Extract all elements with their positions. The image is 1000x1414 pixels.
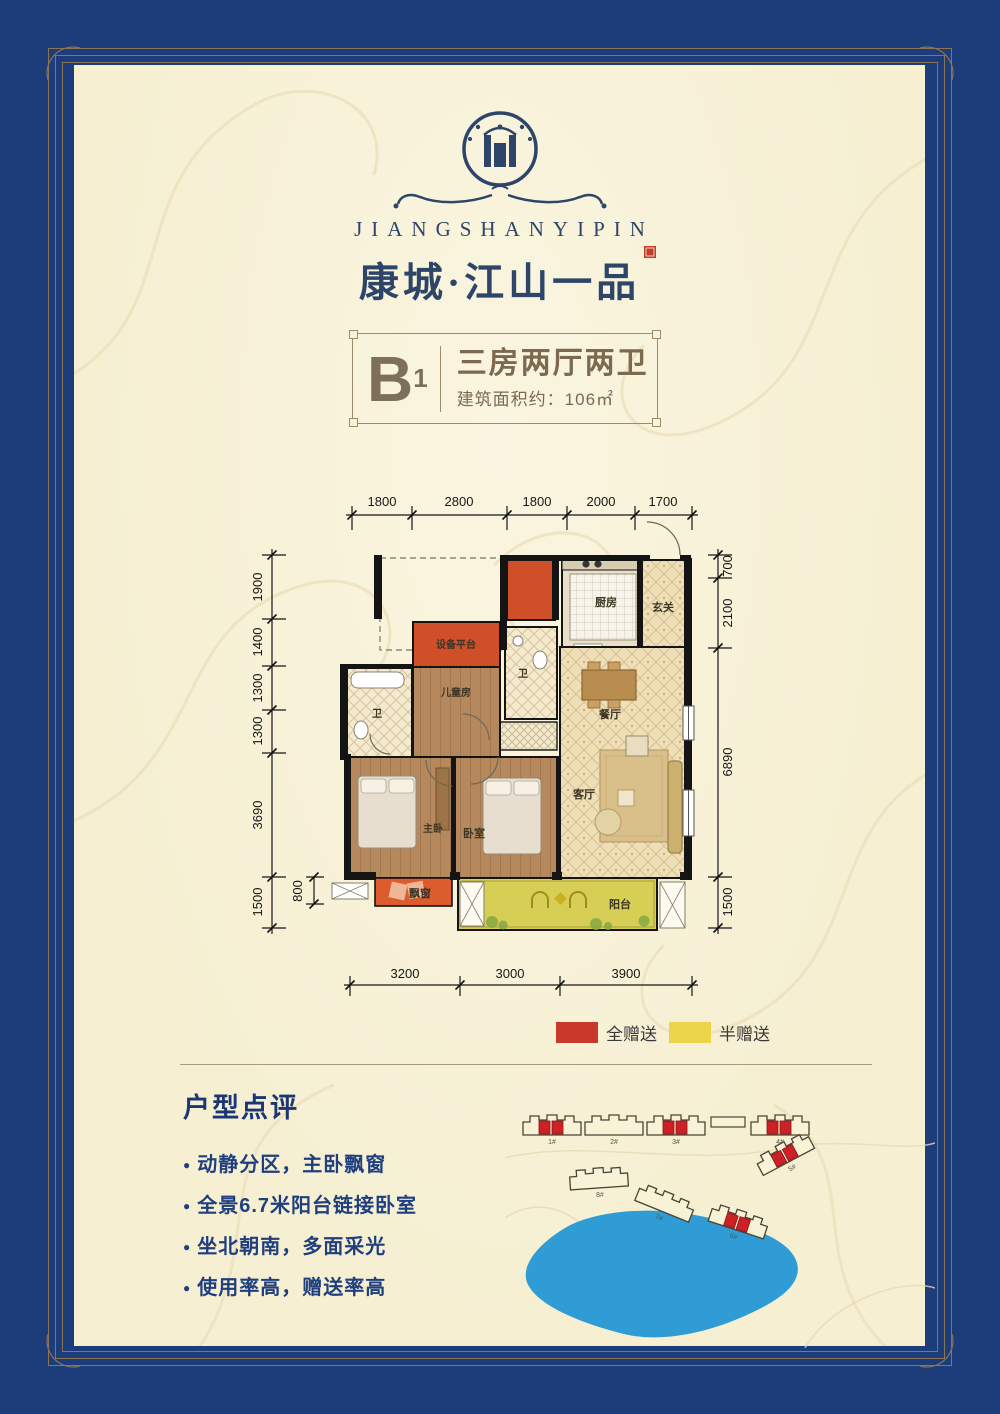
toilet-icon [533, 651, 547, 669]
building-1: 1# [523, 1115, 581, 1146]
legend-half-gift: 半赠送 [669, 1020, 770, 1045]
bathtub-icon [351, 672, 404, 688]
gift-room-red [507, 558, 555, 620]
building-label: 5# [787, 1163, 797, 1173]
dim-top-2: 1800 [523, 494, 552, 509]
dim-top-1: 2800 [445, 494, 474, 509]
box-corner-ornament [349, 330, 358, 339]
legend-half-swatch [669, 1022, 711, 1043]
room-label-bath2: 卫 [518, 668, 528, 680]
unit-code-sub: 1 [413, 363, 427, 394]
tv-cabinet-icon [626, 736, 648, 756]
dim-bottom-1: 3000 [496, 966, 525, 981]
brand-romanized: JIANGSHANYIPIN [74, 217, 925, 242]
room-label-bay: 飘窗 [409, 886, 431, 900]
dim-bottom-0: 3200 [391, 966, 420, 981]
room-label-kitchen: 厨房 [595, 595, 617, 609]
box-corner-ornament [652, 418, 661, 427]
building-label: 3# [672, 1139, 680, 1146]
legend-full-gift: 全赠送 [556, 1020, 657, 1045]
unit-area: 建筑面积约：106㎡ [457, 385, 649, 410]
floorplan-rooms [332, 558, 685, 930]
room-label-living: 客厅 [572, 787, 595, 801]
kids-room [413, 667, 500, 757]
review-section: 户型点评 动静分区，主卧飘窗 全景6.7米阳台链接卧室 坐北朝南，多面采光 使用… [183, 1086, 513, 1309]
building-5: 5# [754, 1131, 820, 1186]
room-label-equipment: 设备平台 [436, 638, 476, 651]
sofa-icon [668, 761, 682, 853]
stove-burner-icon [582, 560, 589, 567]
dim-top-0: 1800 [368, 494, 397, 509]
room-label-kids: 儿童房 [440, 686, 471, 699]
wardrobe-icon [436, 768, 449, 830]
toilet-icon [354, 721, 368, 739]
dim-left-3: 1300 [250, 717, 265, 746]
dim-left-0: 1900 [250, 573, 265, 602]
review-bullet: 全景6.7米阳台链接卧室 [183, 1186, 513, 1227]
building-3: 3# [647, 1115, 705, 1146]
building-label: 1# [548, 1139, 556, 1146]
section-divider [180, 1064, 872, 1065]
brand-name: 康城·江山一品 [359, 250, 640, 308]
brand-seal-icon [644, 246, 656, 258]
dim-right-1: 2100 [720, 599, 735, 628]
stove-burner-icon [594, 560, 601, 567]
room-label-bath1: 卫 [372, 708, 382, 720]
building-2: 2# [585, 1115, 643, 1146]
unit-info-box: B 1 三房两厅两卫 建筑面积约：106㎡ [352, 333, 658, 424]
review-bullet: 动静分区，主卧飘窗 [183, 1145, 513, 1186]
review-list: 动静分区，主卧飘窗 全景6.7米阳台链接卧室 坐北朝南，多面采光 使用率高，赠送… [183, 1145, 513, 1309]
brand-emblem-icon [380, 105, 620, 215]
building-8: 8# [569, 1166, 629, 1201]
site-plan: 1# 2# 3# 4# 5# 8# 7# 6# [505, 1098, 935, 1348]
dining-table-icon [582, 670, 636, 700]
unit-type-title: 三房两厅两卫 [457, 347, 649, 382]
room-label-balcony: 阳台 [609, 897, 631, 911]
room-label-dining: 餐厅 [598, 707, 621, 721]
brand-block: JIANGSHANYIPIN 康城·江山一品 [74, 105, 925, 308]
dim-right-0: 700 [720, 555, 735, 577]
dim-right-3: 1500 [720, 888, 735, 917]
gift-legend: 全赠送 半赠送 [556, 1020, 770, 1045]
room-label-bedroom: 卧室 [463, 826, 485, 840]
building-label: 8# [596, 1192, 604, 1200]
room-label-foyer: 玄关 [652, 600, 674, 614]
review-bullet: 坐北朝南，多面采光 [183, 1227, 513, 1268]
dim-top-3: 2000 [587, 494, 616, 509]
sink-icon [513, 636, 523, 646]
legend-full-label: 全赠送 [606, 1020, 657, 1045]
dim-left-inner: 800 [290, 880, 305, 902]
floorplan-drawing: 厨房 玄关 设备平台 儿童房 卫 卫 餐厅 客厅 主卧 卧室 飘窗 阳台 [240, 478, 760, 1018]
review-heading: 户型点评 [183, 1086, 513, 1125]
dim-right-2: 6890 [720, 748, 735, 777]
box-corner-ornament [652, 330, 661, 339]
room-label-master: 主卧 [423, 822, 443, 835]
box-corner-ornament [349, 418, 358, 427]
dim-left-1: 1400 [250, 628, 265, 657]
dim-bottom-2: 3900 [612, 966, 641, 981]
building-label: 2# [610, 1139, 618, 1146]
dim-top-4: 1700 [649, 494, 678, 509]
unit-box-divider [440, 346, 441, 412]
review-bullet: 使用率高，赠送率高 [183, 1268, 513, 1309]
dim-left-2: 1300 [250, 674, 265, 703]
poster-page: { "brand": { "romanized": "JIANGSHANYIPI… [0, 0, 1000, 1414]
unit-code: B [367, 347, 413, 411]
site-bar [711, 1117, 745, 1127]
dim-left-5: 1500 [250, 888, 265, 917]
legend-full-swatch [556, 1022, 598, 1043]
dim-left-4: 3690 [250, 801, 265, 830]
legend-half-label: 半赠送 [719, 1020, 770, 1045]
coffee-table-icon [595, 809, 621, 835]
